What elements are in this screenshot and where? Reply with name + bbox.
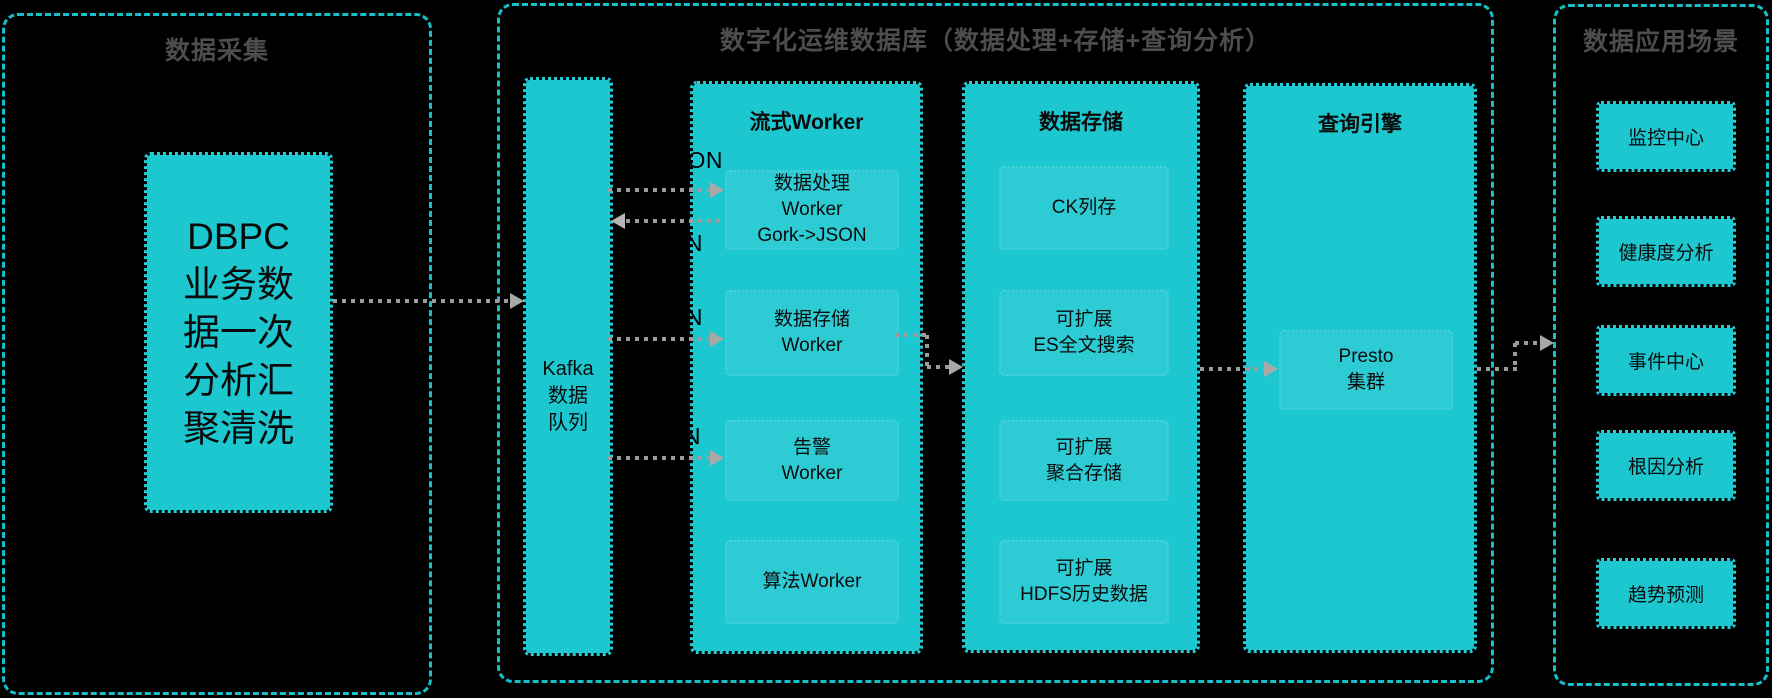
app-root-cause-label: 根因分析 [1628,452,1704,479]
arrow-stream-to-storage-seg2 [925,335,929,369]
app-event-center: 事件中心 [1596,325,1736,396]
agg-store-box: 可扩展 聚合存储 [999,420,1169,501]
ck-store-box: CK列存 [999,166,1169,250]
data-storage-title: 数据存储 [965,106,1197,136]
dbpc-line-1: DBPC [187,213,290,261]
kafka-line-3: 队列 [548,410,588,437]
arrow-query-to-apps-seg1 [1477,367,1517,371]
app-monitor-center-label: 监控中心 [1628,123,1704,150]
arrow-stream-to-storage-seg1 [895,333,929,337]
json-label-1: JSON [613,147,723,174]
data-store-line-1: 数据存储 [774,307,850,333]
data-process-worker-box: 数据处理 Worker Gork->JSON [725,170,899,250]
app-event-center-label: 事件中心 [1628,347,1704,374]
app-trend-forecast: 趋势预测 [1596,558,1736,629]
arrow-dbpc-to-kafka-head [510,293,524,309]
data-application-title: 数据应用场景 [1556,22,1766,58]
app-monitor-center: 监控中心 [1596,101,1736,172]
presto-line-2: 集群 [1347,370,1385,396]
kafka-line-2: 数据 [548,383,588,410]
arrow-query-to-apps-head [1540,335,1554,351]
arrow-stream-to-kafka-line [626,219,725,223]
dbpc-line-3: 据一次 [183,309,294,357]
alert-line-1: 告警 [793,435,831,461]
json-label-2: JSON [593,230,703,257]
presto-line-1: Presto [1339,344,1394,370]
stream-worker-column: 流式Worker 数据处理 Worker Gork->JSON 数据存储 Wor… [690,81,923,654]
json-label-3: JSON [593,304,703,331]
json-label-4: JSON [591,423,701,450]
kafka-line-1: Kafka [542,356,593,383]
app-health-analysis-label: 健康度分析 [1618,238,1713,265]
app-root-cause: 根因分析 [1596,430,1736,501]
arrow-kafka-to-stream-2-line [608,337,710,341]
arrow-dbpc-to-kafka-line [333,299,510,303]
arrow-kafka-to-stream-1-line [608,188,710,192]
hdfs-history-line-2: HDFS历史数据 [1020,582,1148,608]
data-process-line-2: Worker [782,197,843,223]
app-health-analysis: 健康度分析 [1596,216,1736,287]
alert-line-2: Worker [782,461,843,487]
agg-store-line-2: 聚合存储 [1046,461,1122,487]
data-storage-column: 数据存储 CK列存 可扩展 ES全文搜索 可扩展 聚合存储 可扩展 HDFS历史… [962,81,1200,653]
data-process-line-1: 数据处理 [774,171,850,197]
dbpc-line-2: 业务数 [183,261,294,309]
ops-database-title: 数字化运维数据库（数据处理+存储+查询分析） [500,21,1491,57]
algo-line-1: 算法Worker [763,569,862,595]
arrow-storage-to-query-head [1264,361,1278,377]
arrow-kafka-to-stream-1-head [710,182,724,198]
diagram-canvas: 数据采集 DBPC 业务数 据一次 分析汇 聚清洗 数字化运维数据库（数据处理+… [0,0,1772,698]
arrow-kafka-to-stream-3-head [710,450,724,466]
agg-store-line-1: 可扩展 [1055,435,1112,461]
arrow-kafka-to-stream-2-head [710,331,724,347]
dbpc-box: DBPC 业务数 据一次 分析汇 聚清洗 [144,152,333,513]
data-store-worker-box: 数据存储 Worker [725,290,899,376]
query-engine-column: 查询引擎 Presto 集群 [1243,83,1477,653]
arrow-storage-to-query-line [1200,367,1264,371]
arrow-query-to-apps-seg2 [1513,343,1517,371]
arrow-kafka-to-stream-3-line [608,456,710,460]
query-engine-title: 查询引擎 [1246,108,1474,138]
dbpc-line-5: 聚清洗 [183,405,294,453]
arrow-stream-to-storage-seg3 [927,365,949,369]
dbpc-line-4: 分析汇 [183,357,294,405]
app-trend-forecast-label: 趋势预测 [1628,580,1704,607]
data-collection-title: 数据采集 [5,31,429,67]
hdfs-history-box: 可扩展 HDFS历史数据 [999,540,1169,624]
data-application-container: 数据应用场景 监控中心 健康度分析 事件中心 根因分析 趋势预测 [1553,4,1769,686]
stream-worker-title: 流式Worker [693,106,920,136]
arrow-stream-to-kafka-head [611,213,625,229]
arrow-query-to-apps-seg3 [1515,341,1541,345]
hdfs-history-line-1: 可扩展 [1055,556,1112,582]
data-store-line-2: Worker [782,333,843,359]
kafka-queue-box: Kafka 数据 队列 [523,77,613,656]
algo-worker-box: 算法Worker [725,540,899,624]
es-search-line-2: ES全文搜索 [1033,333,1134,359]
es-search-line-1: 可扩展 [1055,307,1112,333]
data-process-line-3: Gork->JSON [757,223,866,249]
arrow-stream-to-storage-head [949,359,963,375]
presto-cluster-box: Presto 集群 [1279,330,1453,410]
alert-worker-box: 告警 Worker [725,420,899,501]
ck-store-line-1: CK列存 [1052,195,1116,221]
es-search-box: 可扩展 ES全文搜索 [999,290,1169,376]
